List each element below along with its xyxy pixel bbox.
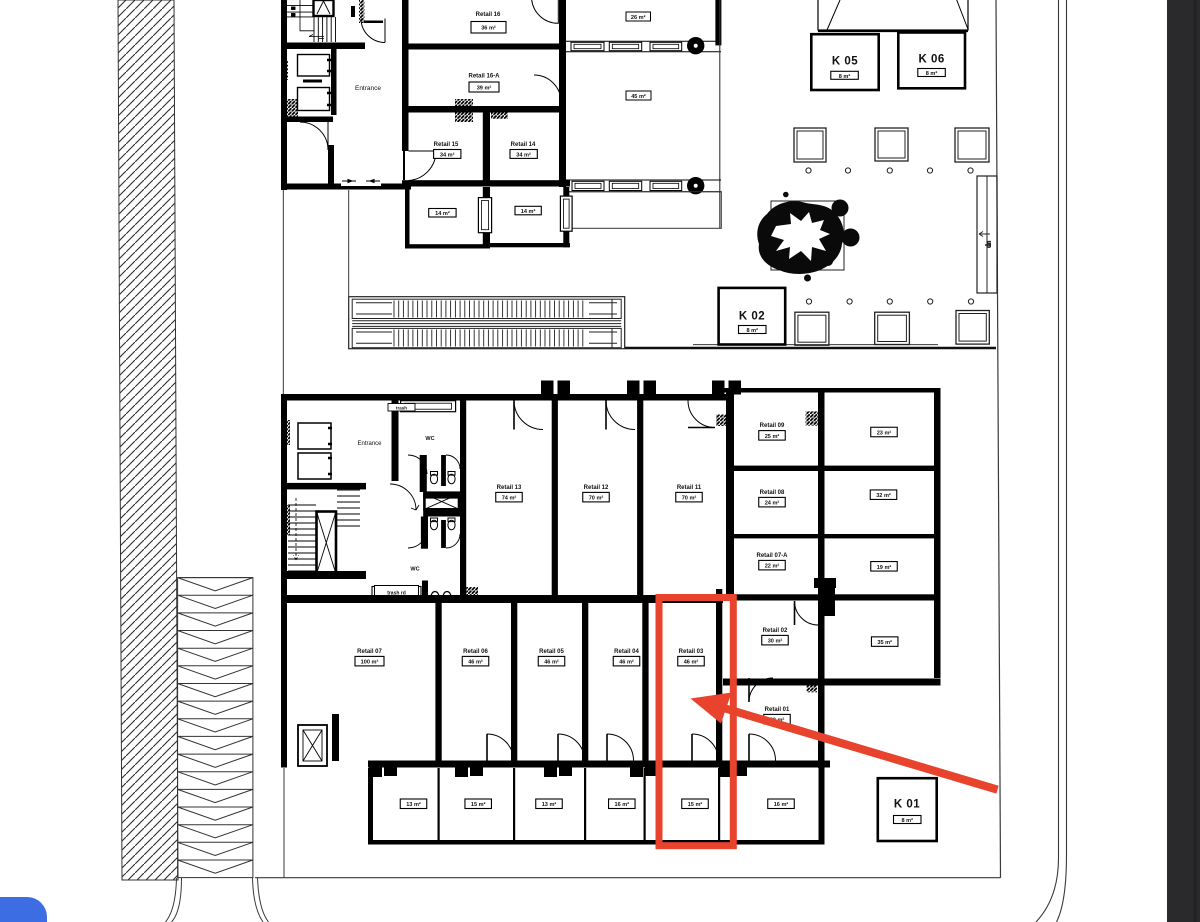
svg-text:15 m²: 15 m² bbox=[688, 801, 703, 808]
svg-text:24 m²: 24 m² bbox=[765, 500, 780, 507]
svg-text:K 01: K 01 bbox=[894, 799, 920, 811]
svg-text:13 m²: 13 m² bbox=[542, 801, 557, 808]
svg-text:K 02: K 02 bbox=[739, 311, 765, 323]
svg-text:13 m²: 13 m² bbox=[406, 801, 421, 808]
svg-text:Retail 03: Retail 03 bbox=[679, 649, 704, 655]
svg-text:35 m²: 35 m² bbox=[877, 639, 892, 646]
svg-text:Entrance: Entrance bbox=[355, 85, 381, 92]
svg-text:30 m²: 30 m² bbox=[768, 638, 783, 645]
svg-text:16 m²: 16 m² bbox=[614, 801, 629, 808]
svg-text:WC: WC bbox=[410, 567, 419, 573]
svg-text:46 m²: 46 m² bbox=[544, 659, 559, 666]
svg-text:Retail 05: Retail 05 bbox=[539, 649, 564, 655]
svg-text:Retail 16-A: Retail 16-A bbox=[468, 74, 500, 80]
svg-text:Retail 07: Retail 07 bbox=[357, 649, 382, 655]
svg-text:Retail 04: Retail 04 bbox=[614, 649, 639, 655]
svg-text:Retail 08: Retail 08 bbox=[760, 490, 785, 496]
svg-text:WC: WC bbox=[425, 436, 434, 442]
svg-text:Entrance: Entrance bbox=[357, 441, 382, 447]
svg-text:16 m²: 16 m² bbox=[774, 801, 789, 808]
svg-text:Retail 02: Retail 02 bbox=[763, 628, 788, 634]
svg-text:8 m²: 8 m² bbox=[901, 817, 913, 824]
svg-text:74 m²: 74 m² bbox=[502, 495, 517, 502]
svg-text:Retail 14: Retail 14 bbox=[511, 142, 536, 148]
svg-text:46 m²: 46 m² bbox=[468, 659, 483, 666]
svg-text:15 m²: 15 m² bbox=[471, 801, 486, 808]
svg-text:22 m²: 22 m² bbox=[765, 563, 780, 570]
svg-text:Retail 11: Retail 11 bbox=[677, 485, 702, 491]
svg-text:34 m²: 34 m² bbox=[440, 151, 455, 158]
svg-text:14 m²: 14 m² bbox=[435, 210, 450, 217]
svg-text:32 m²: 32 m² bbox=[876, 492, 891, 499]
svg-text:14 m²: 14 m² bbox=[521, 208, 536, 215]
svg-text:Retail 09: Retail 09 bbox=[760, 423, 785, 429]
svg-text:Retail 16: Retail 16 bbox=[476, 12, 501, 18]
svg-text:70 m²: 70 m² bbox=[682, 495, 697, 502]
svg-text:8 m²: 8 m² bbox=[926, 70, 938, 77]
svg-text:19 m²: 19 m² bbox=[877, 564, 892, 571]
svg-text:39 m²: 39 m² bbox=[477, 85, 492, 92]
svg-text:70 m²: 70 m² bbox=[589, 495, 604, 502]
svg-text:45 m²: 45 m² bbox=[631, 93, 646, 100]
svg-text:up: up bbox=[985, 241, 991, 248]
svg-text:Retail 12: Retail 12 bbox=[584, 485, 609, 491]
svg-text:Retail 13: Retail 13 bbox=[497, 485, 522, 491]
svg-text:Retail 06: Retail 06 bbox=[463, 649, 488, 655]
svg-text:Retail 01: Retail 01 bbox=[765, 707, 790, 713]
svg-text:Retail 07-A: Retail 07-A bbox=[756, 553, 788, 559]
svg-text:25 m²: 25 m² bbox=[765, 433, 780, 440]
svg-text:34 m²: 34 m² bbox=[516, 151, 531, 158]
svg-text:8 m²: 8 m² bbox=[746, 327, 758, 334]
svg-text:36 m²: 36 m² bbox=[481, 25, 496, 32]
svg-text:K 05: K 05 bbox=[832, 56, 858, 68]
svg-text:K 06: K 06 bbox=[918, 54, 944, 66]
svg-text:trash: trash bbox=[396, 406, 407, 411]
svg-text:8 m²: 8 m² bbox=[839, 73, 851, 80]
svg-text:26 m²: 26 m² bbox=[631, 14, 646, 21]
svg-text:100 m²: 100 m² bbox=[361, 659, 379, 666]
svg-text:46 m²: 46 m² bbox=[684, 659, 699, 666]
svg-text:23 m²: 23 m² bbox=[877, 429, 892, 436]
svg-text:46 m²: 46 m² bbox=[619, 659, 634, 666]
svg-text:Retail 15: Retail 15 bbox=[434, 142, 459, 148]
